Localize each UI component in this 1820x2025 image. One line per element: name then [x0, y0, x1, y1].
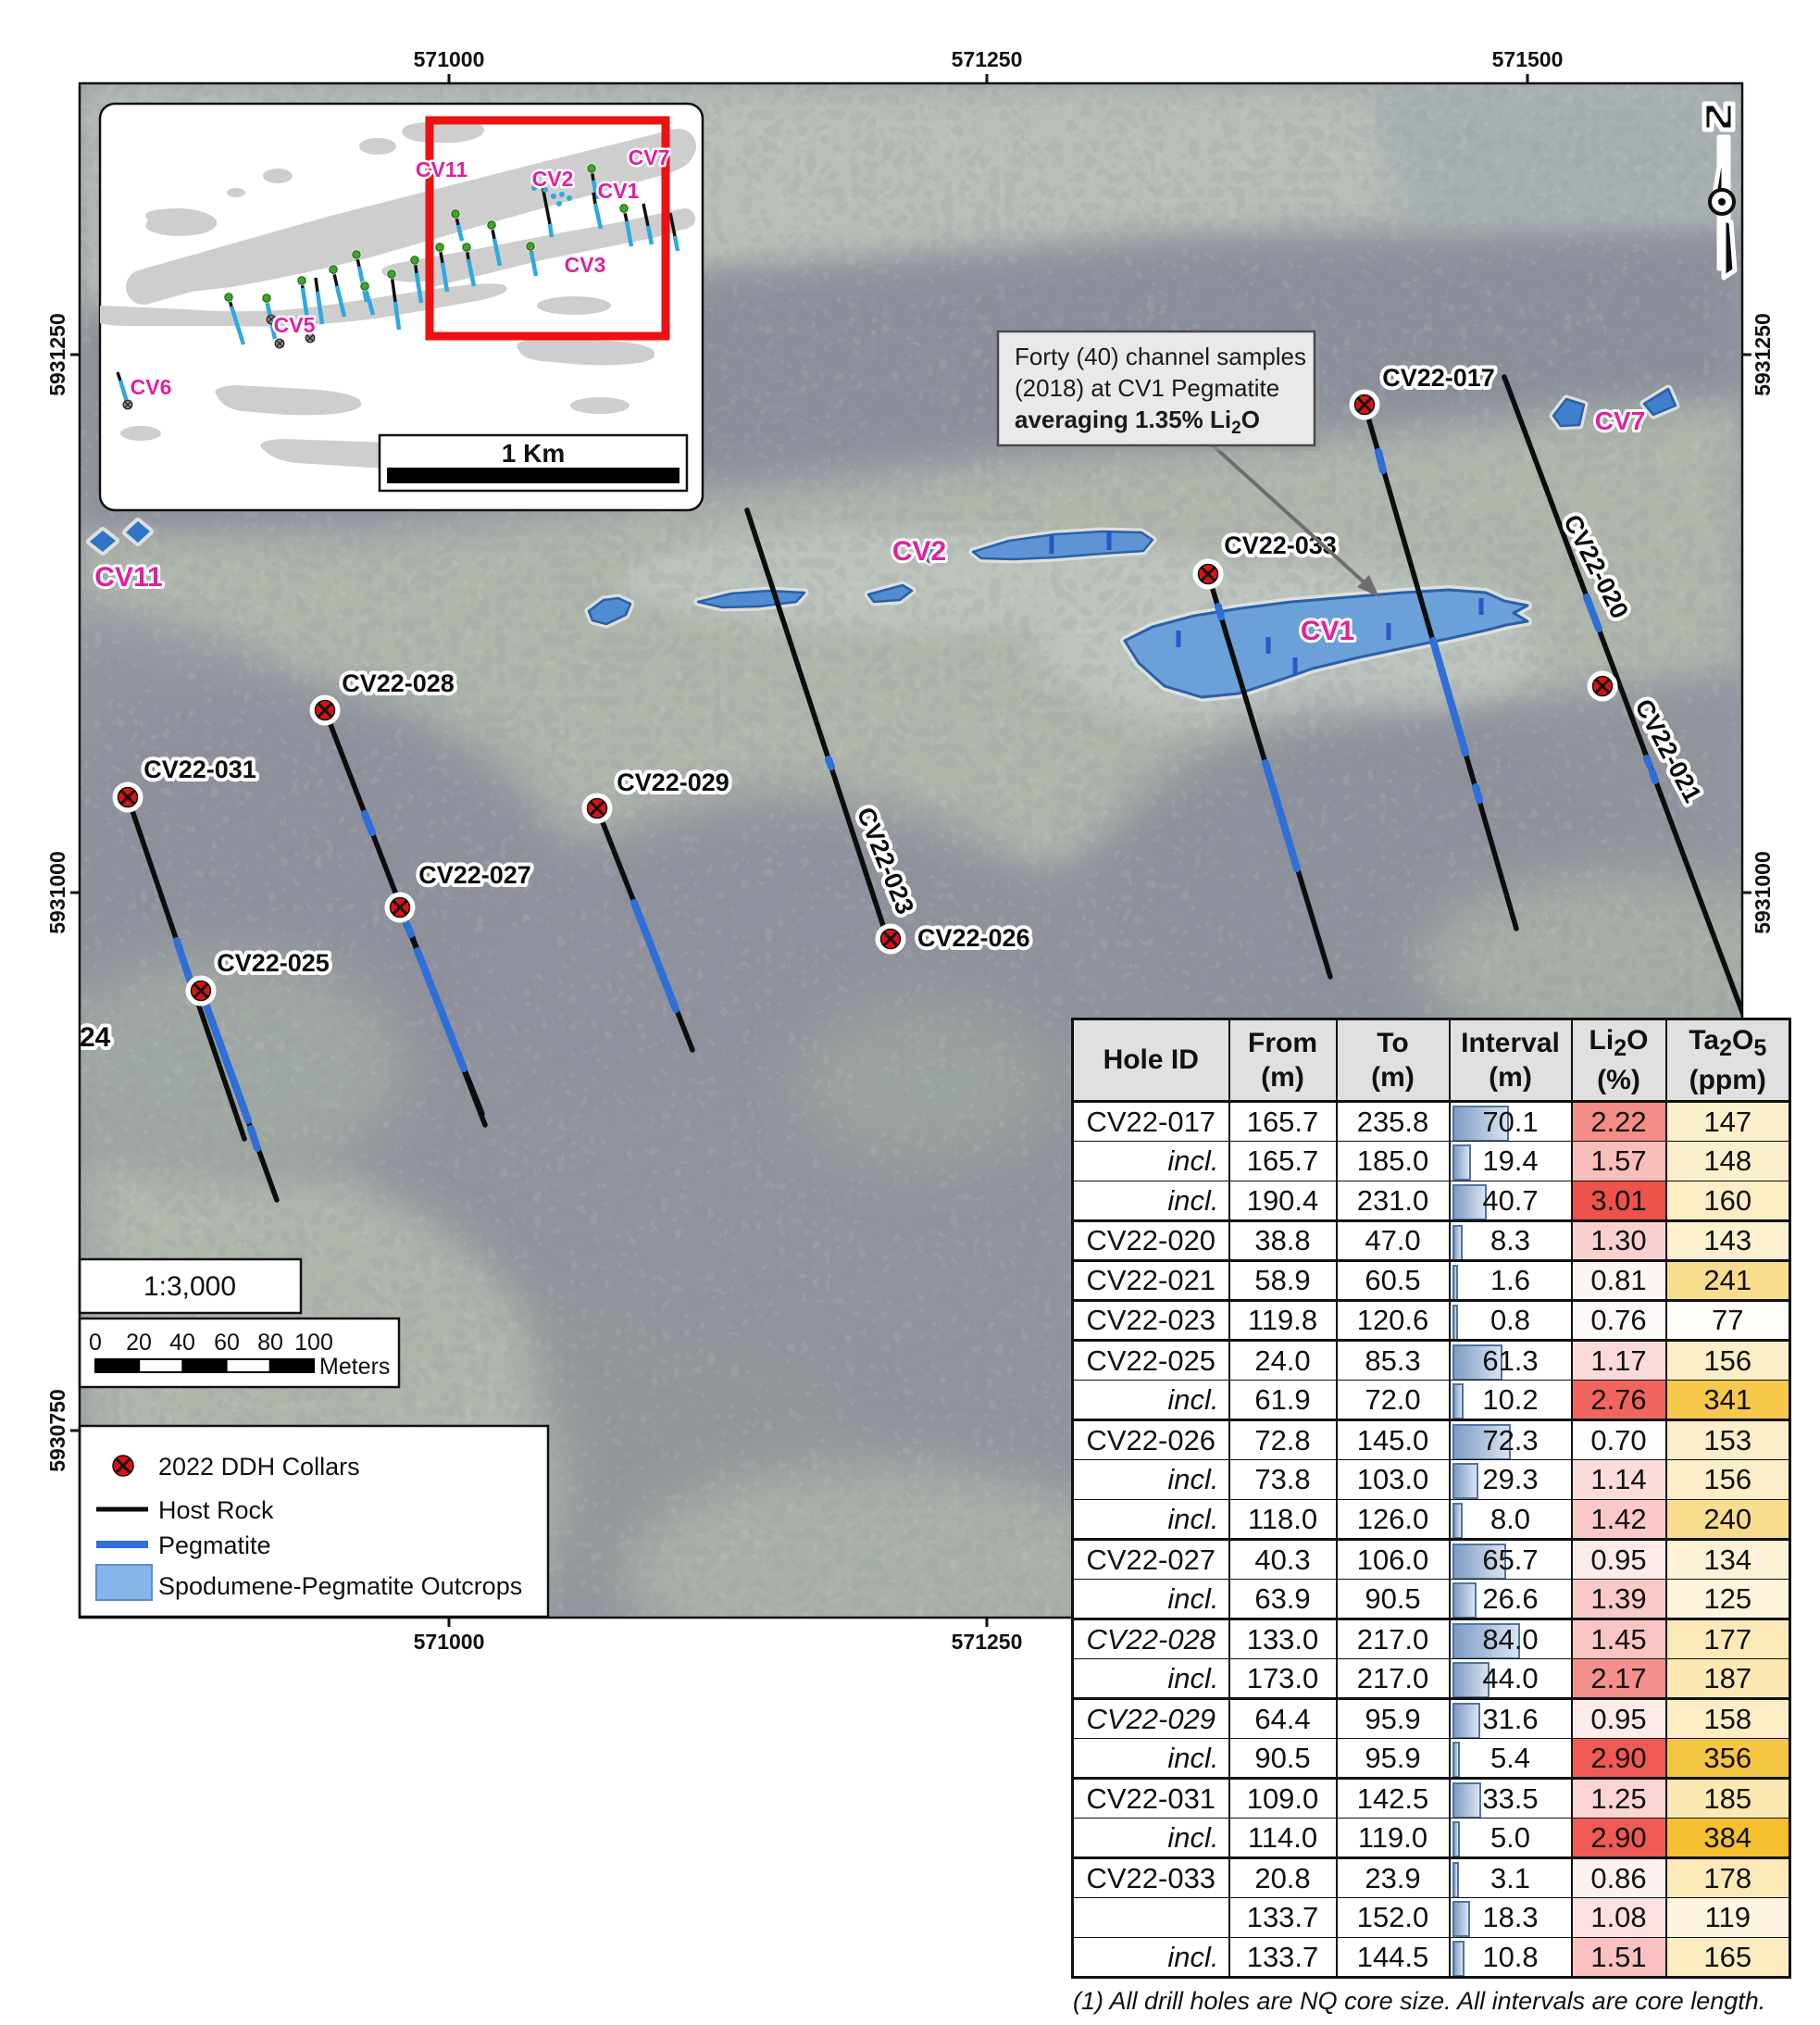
svg-text:40: 40 — [169, 1330, 195, 1356]
svg-text:20: 20 — [126, 1330, 152, 1356]
svg-text:5931250: 5931250 — [1751, 313, 1775, 396]
svg-text:5931250: 5931250 — [45, 313, 69, 396]
svg-text:571000: 571000 — [414, 1630, 485, 1654]
svg-text:5930750: 5930750 — [45, 1389, 69, 1472]
svg-text:5931000: 5931000 — [1751, 851, 1775, 934]
svg-text:0: 0 — [89, 1330, 102, 1356]
svg-text:CV11: CV11 — [416, 157, 467, 181]
svg-text:CV22-017: CV22-017 — [1382, 364, 1495, 392]
svg-text:60: 60 — [214, 1330, 240, 1356]
svg-text:(2018) at CV1 Pegmatite: (2018) at CV1 Pegmatite — [1015, 374, 1279, 402]
svg-text:Meters: Meters — [319, 1354, 390, 1380]
svg-text:571000: 571000 — [414, 47, 485, 71]
svg-text:CV22-031: CV22-031 — [143, 756, 256, 783]
svg-text:Forty (40) channel samples: Forty (40) channel samples — [1015, 343, 1306, 370]
svg-text:CV22-028: CV22-028 — [342, 669, 455, 697]
svg-text:2022 DDH Collars: 2022 DDH Collars — [158, 1453, 360, 1481]
svg-text:CV22-033: CV22-033 — [1224, 531, 1337, 559]
svg-text:CV2: CV2 — [532, 167, 574, 191]
svg-text:CV2: CV2 — [892, 536, 946, 567]
svg-text:5931000: 5931000 — [45, 851, 69, 934]
svg-text:CV22-025: CV22-025 — [217, 949, 330, 977]
svg-text:CV7: CV7 — [629, 145, 670, 169]
svg-text:Host Rock: Host Rock — [158, 1496, 274, 1524]
svg-text:CV22-027: CV22-027 — [418, 861, 531, 889]
svg-text:CV7: CV7 — [1595, 406, 1645, 435]
svg-text:CV1: CV1 — [1301, 616, 1354, 646]
svg-text:24: 24 — [80, 1022, 111, 1053]
svg-text:CV1: CV1 — [598, 179, 640, 203]
svg-text:CV6: CV6 — [131, 375, 172, 399]
svg-text:averaging 1.35% Li2O: averaging 1.35% Li2O — [1015, 406, 1260, 438]
svg-text:1:3,000: 1:3,000 — [143, 1271, 236, 1302]
svg-text:100: 100 — [294, 1330, 333, 1356]
svg-text:Pegmatite: Pegmatite — [158, 1531, 271, 1559]
svg-text:1 Km: 1 Km — [502, 439, 565, 468]
svg-text:CV11: CV11 — [94, 562, 162, 593]
svg-text:CV3: CV3 — [565, 253, 606, 277]
svg-text:80: 80 — [257, 1330, 283, 1356]
svg-text:CV22-026: CV22-026 — [917, 924, 1030, 952]
svg-text:571250: 571250 — [952, 47, 1023, 71]
svg-text:Spodumene-Pegmatite Outcrops: Spodumene-Pegmatite Outcrops — [158, 1572, 522, 1600]
svg-text:571500: 571500 — [1492, 47, 1564, 71]
svg-text:CV5: CV5 — [274, 313, 316, 337]
svg-text:CV22-029: CV22-029 — [617, 769, 729, 796]
svg-text:571250: 571250 — [952, 1630, 1023, 1654]
